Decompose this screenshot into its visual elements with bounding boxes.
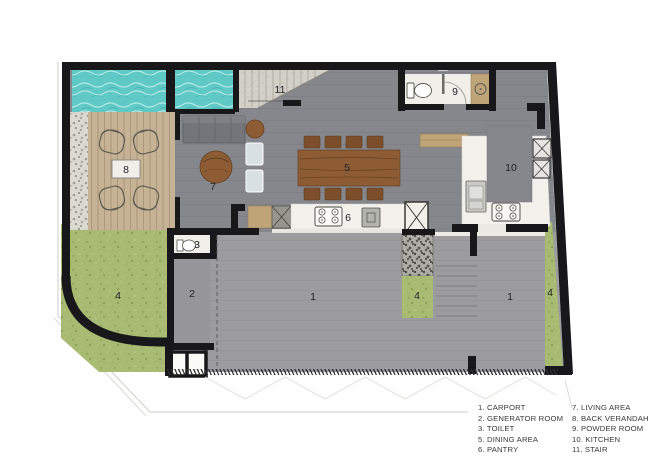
room-label-planter-mid: 4 bbox=[414, 290, 420, 302]
room-label-generator-room: 2 bbox=[189, 288, 195, 300]
legend-item: 7. LIVING AREA bbox=[572, 403, 649, 414]
room-label-toilet: 3 bbox=[194, 239, 200, 251]
plan-labels: 11 9 8 7 5 10 6 3 2 4 1 4 1 4 bbox=[0, 0, 650, 459]
legend-column-2: 7. LIVING AREA 8. BACK VERANDAH 9. POWDE… bbox=[572, 403, 649, 456]
legend-item: 10. KITCHEN bbox=[572, 435, 649, 446]
room-label-pantry: 6 bbox=[345, 212, 351, 224]
room-label-carport-right: 1 bbox=[507, 291, 513, 303]
room-label-dining-area: 5 bbox=[344, 162, 350, 174]
room-label-kitchen: 10 bbox=[505, 162, 517, 174]
room-label-carport-main: 1 bbox=[310, 291, 316, 303]
room-label-powder-room: 9 bbox=[452, 86, 458, 98]
room-label-stair: 11 bbox=[275, 84, 286, 96]
legend: 1. CARPORT 2. GENERATOR ROOM 3. TOILET 5… bbox=[478, 403, 649, 456]
legend-item: 1. CARPORT bbox=[478, 403, 572, 414]
legend-item: 3. TOILET bbox=[478, 424, 572, 435]
room-label-living-area: 7 bbox=[210, 181, 216, 193]
room-label-back-verandah: 8 bbox=[123, 164, 129, 176]
legend-item: 11. STAIR bbox=[572, 445, 649, 456]
floor-plan-page: 11 9 8 7 5 10 6 3 2 4 1 4 1 4 1. CARPORT… bbox=[0, 0, 650, 459]
room-label-planter-right: 4 bbox=[547, 287, 553, 299]
room-label-garden-left: 4 bbox=[115, 290, 121, 302]
legend-item: 8. BACK VERANDAH bbox=[572, 414, 649, 425]
legend-item: 9. POWDER ROOM bbox=[572, 424, 649, 435]
legend-item: 6. PANTRY bbox=[478, 445, 572, 456]
legend-column-1: 1. CARPORT 2. GENERATOR ROOM 3. TOILET 5… bbox=[478, 403, 572, 456]
legend-item: 2. GENERATOR ROOM bbox=[478, 414, 572, 425]
legend-item: 5. DINING AREA bbox=[478, 435, 572, 446]
